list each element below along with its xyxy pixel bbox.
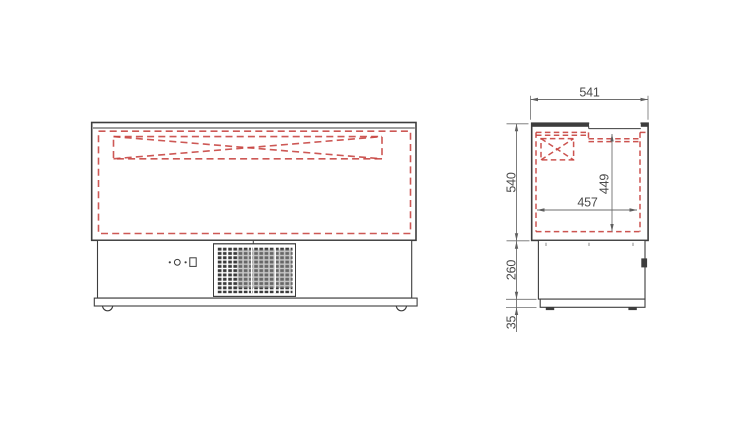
drawing-canvas: 541 540 260 35 449 [0,0,751,429]
technical-drawing: 541 540 260 35 449 [0,0,751,429]
front-plinth [94,298,417,306]
arrowhead [515,308,518,316]
arrowhead [515,124,518,132]
side-top-lip-right [641,123,648,127]
indicator-dot-right-icon [185,261,187,263]
dim-top-width: 541 [531,86,649,120]
dim-label-body-height: 540 [505,172,519,193]
arrowhead [531,98,539,101]
arrowhead [515,233,518,241]
side-foot-left [546,307,554,310]
side-top-band-left [532,123,589,127]
dim-label-interior-width: 457 [577,196,598,210]
side-body-outline [532,123,648,240]
arrowhead [641,98,649,101]
grille-shade-overlay [238,250,293,289]
indicator-dot-left-icon [169,261,171,263]
front-view [92,123,417,311]
dim-label-interior-height: 449 [598,174,612,195]
front-body-outline [92,123,416,241]
arrowhead [515,241,518,249]
dim-label-top-width: 541 [579,86,600,100]
dim-label-base-height: 260 [505,260,519,281]
side-foot-right [628,307,636,310]
side-top-notch [589,122,640,127]
side-view [532,122,649,310]
dim-label-plinth-height: 35 [505,316,519,330]
ventilation-grille [214,244,296,297]
side-plinth [540,299,645,307]
side-handle [641,258,647,267]
side-base-outline [538,240,645,299]
arrowhead [515,292,518,300]
